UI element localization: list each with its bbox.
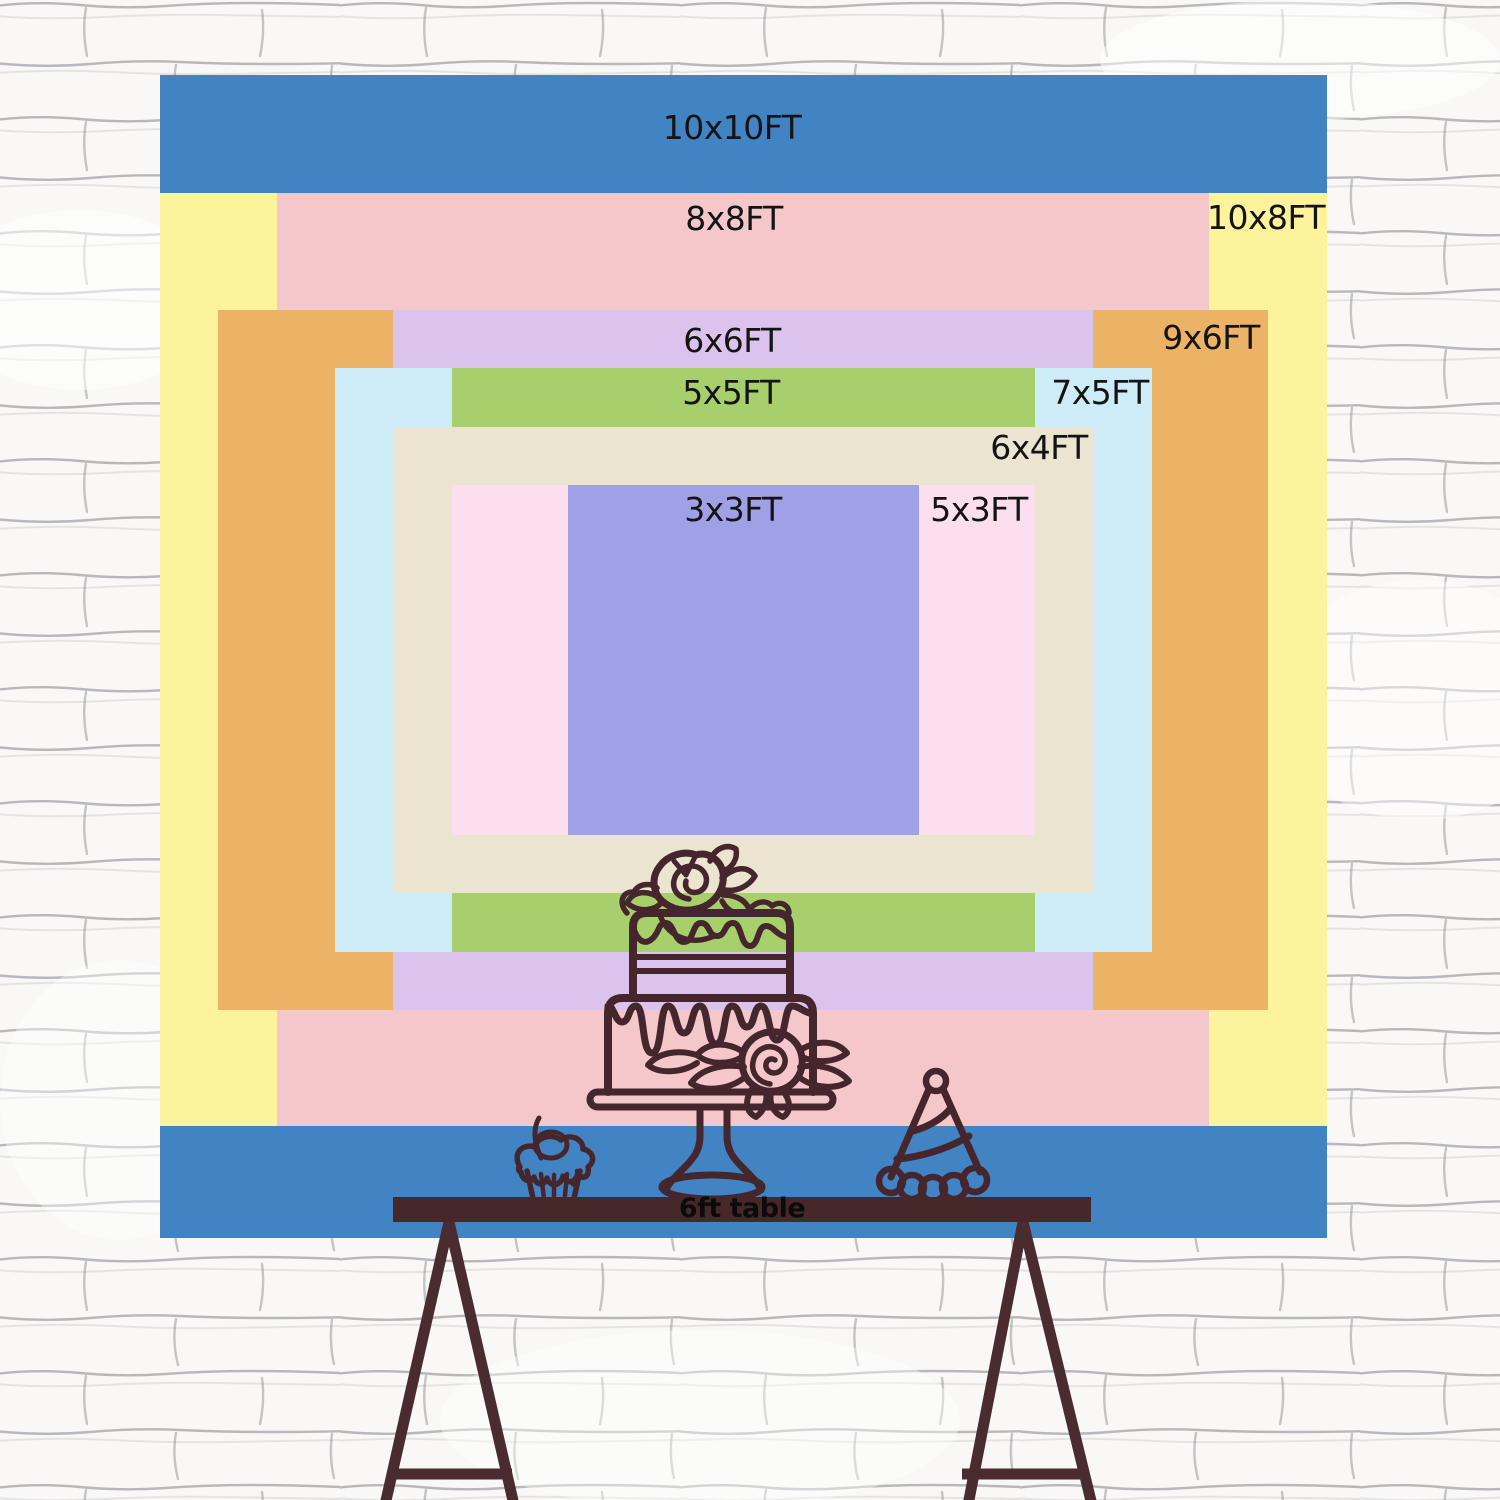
size-label-10x10ft: 10x10FT (663, 111, 802, 144)
size-label-6x4ft: 6x4FT (990, 431, 1088, 464)
size-label-8x8ft: 8x8FT (685, 202, 783, 235)
size-label-3x3ft: 3x3FT (684, 493, 782, 526)
size-label-10x8ft: 10x8FT (1207, 201, 1325, 234)
size-labels: 10x10FT10x8FT8x8FT9x6FT6x6FT7x5FT5x5FT6x… (0, 0, 1500, 1500)
size-label-9x6ft: 9x6FT (1162, 321, 1260, 354)
backdrop-size-chart: 10x10FT10x8FT8x8FT9x6FT6x6FT7x5FT5x5FT6x… (0, 0, 1500, 1500)
size-label-5x5ft: 5x5FT (682, 376, 780, 409)
size-label-7x5ft: 7x5FT (1051, 376, 1149, 409)
size-label-6x6ft: 6x6FT (683, 324, 781, 357)
table-bar: 6ft table (393, 1197, 1091, 1222)
size-label-5x3ft: 5x3FT (930, 493, 1028, 526)
table-label: 6ft table (679, 1193, 805, 1224)
